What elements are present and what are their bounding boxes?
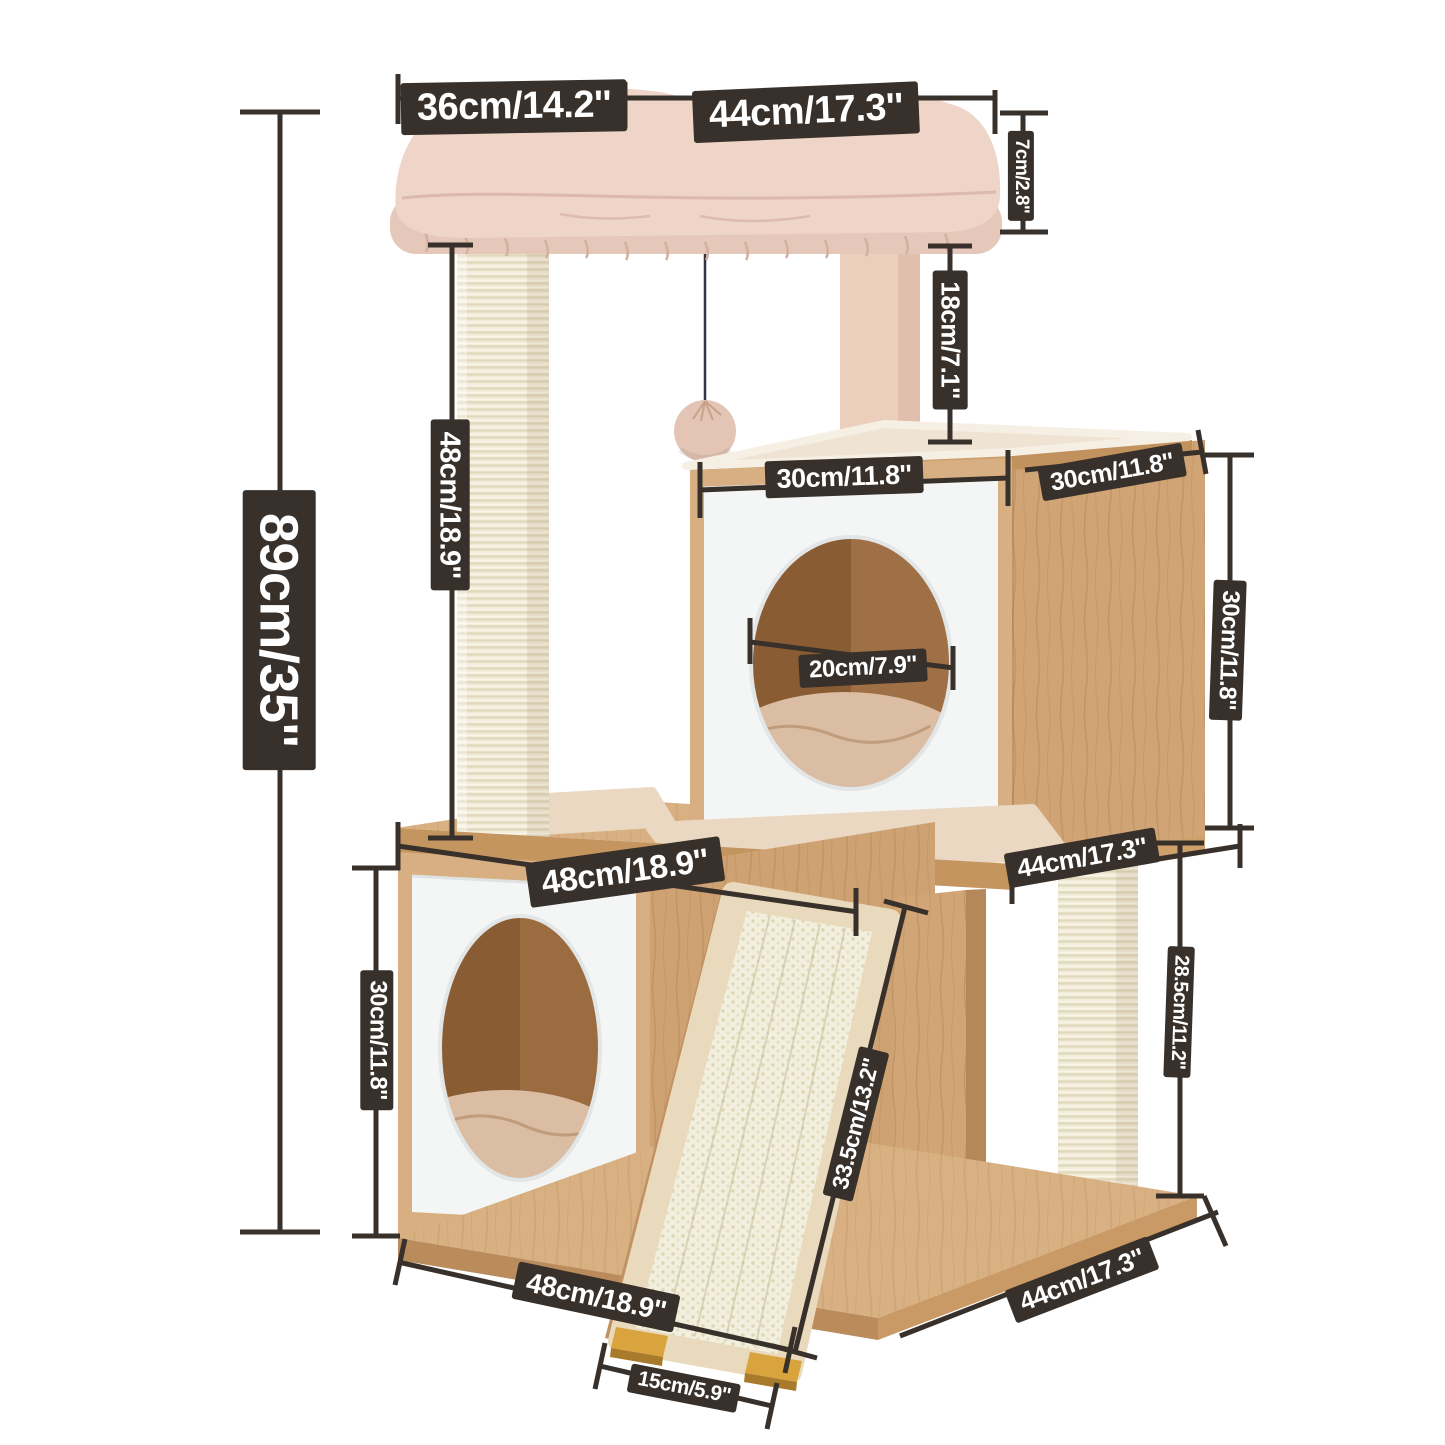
dim-label-condo-width: 30cm/11.8'' — [765, 456, 924, 498]
product-dimension-diagram: 89cm/35'' 36cm/14.2'' 44cm/17.3'' 7cm/2.… — [0, 0, 1445, 1445]
dim-label-bed-width-left: 36cm/14.2'' — [400, 79, 627, 135]
dim-label-left-post-height: 48cm/18.9'' — [430, 419, 469, 590]
dim-label-bed-thickness: 7cm/2.8'' — [1008, 131, 1034, 221]
dim-label-hole-diameter: 20cm/7.9'' — [798, 648, 928, 687]
dim-label-bed-width-right: 44cm/17.3'' — [692, 81, 920, 142]
lower-scratching-post — [1058, 846, 1138, 1192]
cat-tree-illustration — [0, 0, 1445, 1445]
left-scratching-post — [457, 244, 549, 840]
dim-label-condo-height: 30cm/11.8'' — [1209, 580, 1246, 721]
dim-label-overall-height: 89cm/35'' — [242, 490, 315, 770]
dim-label-upper-post-height: 18cm/7.1'' — [932, 270, 967, 409]
dim-label-lower-condo-height: 30cm/11.8'' — [361, 970, 394, 1110]
dim-label-lower-post-height: 28.5cm/11.2'' — [1163, 946, 1195, 1078]
hanging-ball-toy — [674, 240, 736, 462]
